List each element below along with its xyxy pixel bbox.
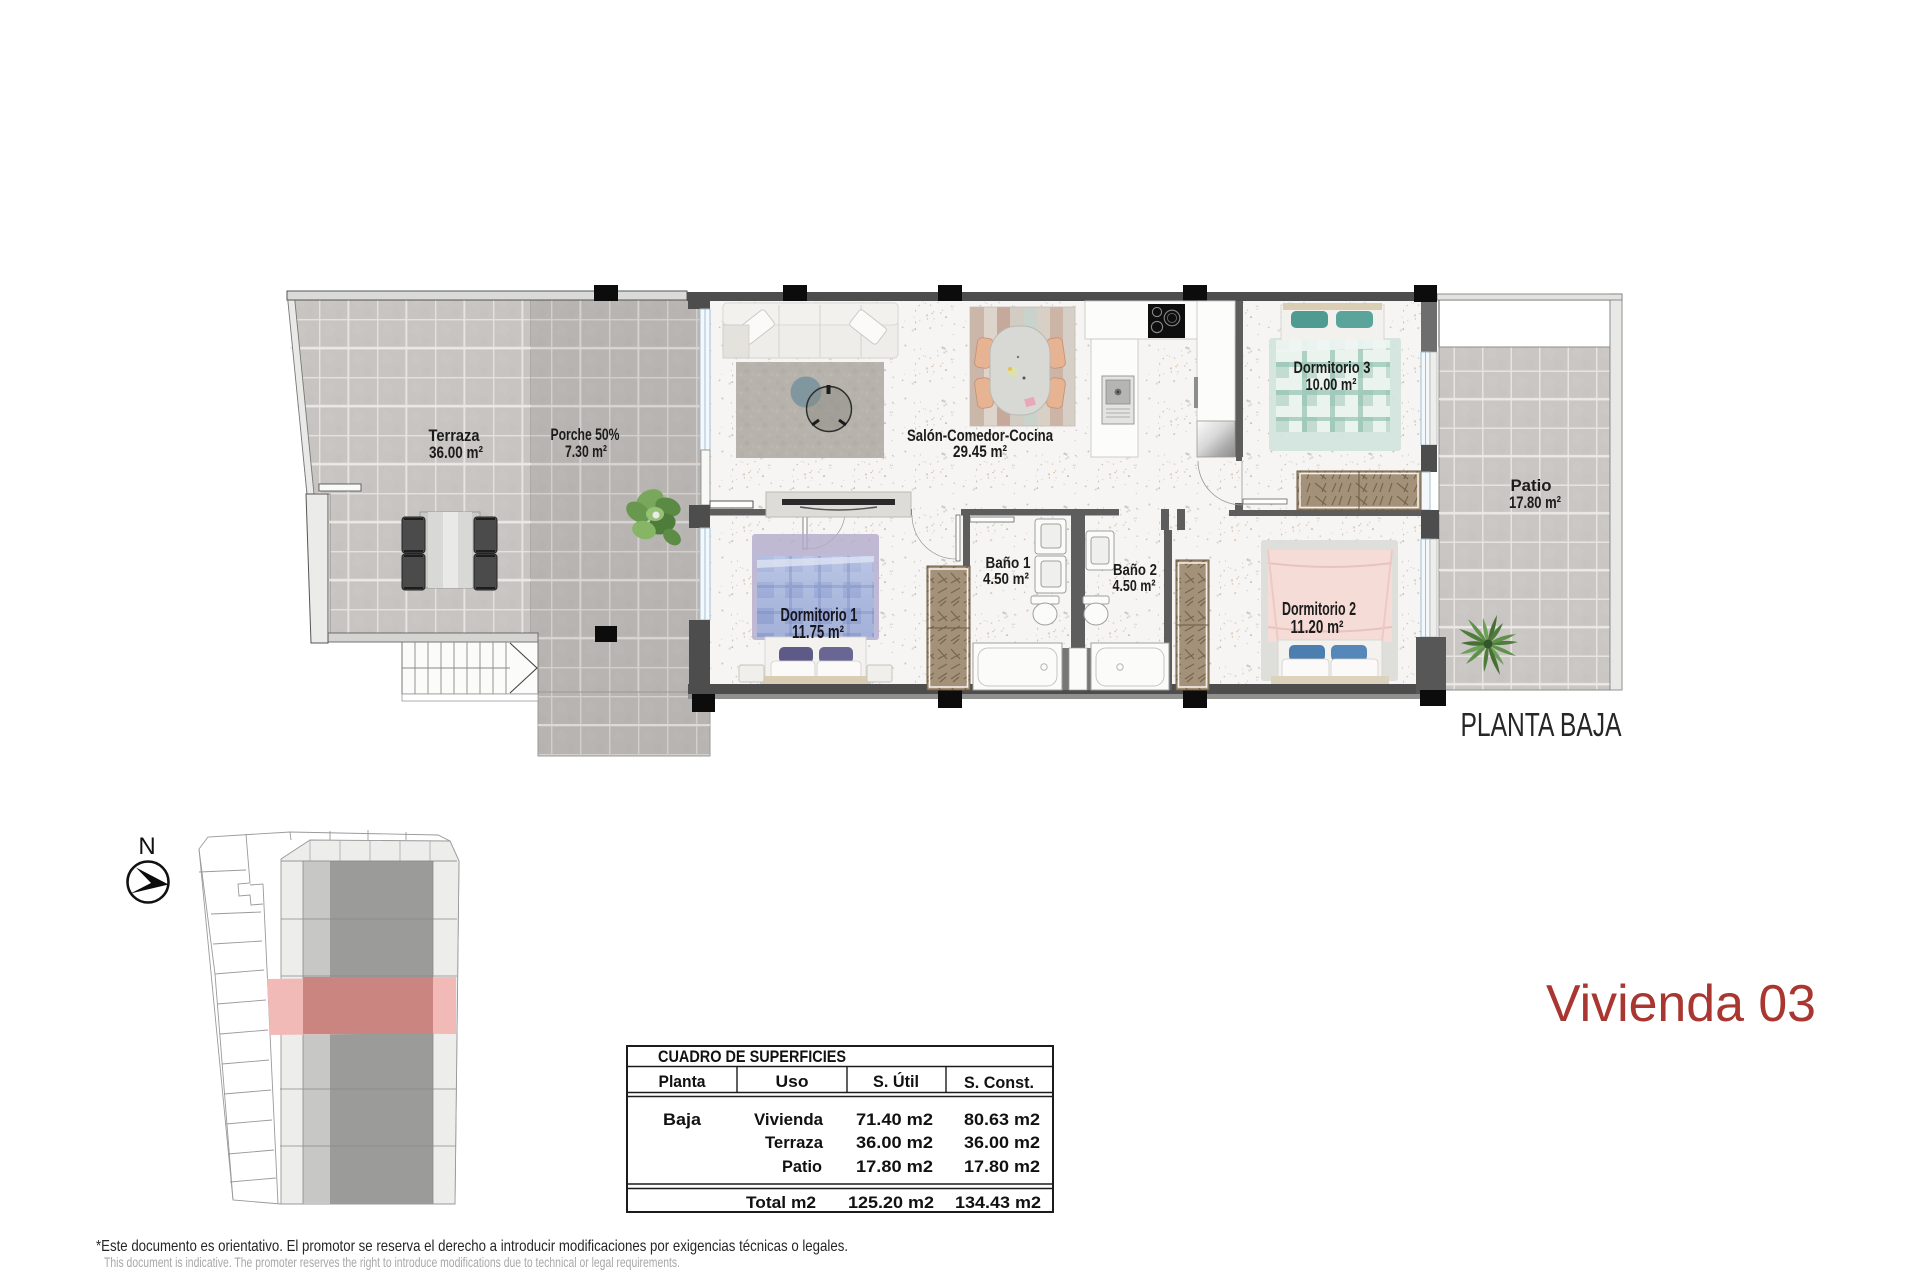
svg-text:4.50 m²: 4.50 m² bbox=[1113, 578, 1156, 595]
svg-text:CUADRO DE SUPERFICIES: CUADRO DE SUPERFICIES bbox=[658, 1047, 846, 1066]
svg-text:11.20 m²: 11.20 m² bbox=[1291, 617, 1344, 637]
svg-text:Patio: Patio bbox=[782, 1157, 822, 1176]
svg-text:Baño 2: Baño 2 bbox=[1113, 562, 1157, 579]
svg-text:S. Útil: S. Útil bbox=[873, 1072, 919, 1091]
svg-text:11.75 m²: 11.75 m² bbox=[792, 622, 844, 642]
svg-text:N: N bbox=[138, 833, 155, 860]
svg-text:10.00 m²: 10.00 m² bbox=[1306, 375, 1357, 394]
svg-text:4.50 m²: 4.50 m² bbox=[983, 571, 1029, 588]
svg-text:80.63 m2: 80.63 m2 bbox=[964, 1110, 1040, 1129]
svg-text:17.80 m2: 17.80 m2 bbox=[964, 1157, 1040, 1176]
svg-text:*Este documento es orientativo: *Este documento es orientativo. El promo… bbox=[96, 1238, 848, 1255]
svg-text:S. Const.: S. Const. bbox=[964, 1073, 1034, 1092]
svg-text:36.00 m2: 36.00 m2 bbox=[856, 1133, 933, 1152]
svg-text:Dormitorio 2: Dormitorio 2 bbox=[1282, 599, 1356, 619]
svg-text:71.40 m2: 71.40 m2 bbox=[856, 1110, 933, 1129]
svg-text:29.45 m²: 29.45 m² bbox=[953, 442, 1007, 461]
svg-text:Uso: Uso bbox=[776, 1072, 809, 1091]
svg-text:Vivienda 03: Vivienda 03 bbox=[1546, 975, 1816, 1033]
svg-text:Terraza: Terraza bbox=[765, 1133, 824, 1152]
svg-text:17.80 m2: 17.80 m2 bbox=[856, 1157, 933, 1176]
svg-text:7.30 m²: 7.30 m² bbox=[565, 442, 607, 461]
svg-text:36.00 m2: 36.00 m2 bbox=[964, 1133, 1040, 1152]
svg-text:134.43 m2: 134.43 m2 bbox=[955, 1193, 1041, 1212]
svg-text:125.20 m2: 125.20 m2 bbox=[848, 1193, 934, 1212]
svg-text:PLANTA BAJA: PLANTA BAJA bbox=[1461, 706, 1622, 743]
svg-text:Vivienda: Vivienda bbox=[754, 1110, 824, 1129]
svg-text:Planta: Planta bbox=[659, 1072, 706, 1091]
svg-text:36.00 m²: 36.00 m² bbox=[429, 443, 483, 462]
svg-text:Baja: Baja bbox=[663, 1110, 702, 1129]
svg-text:Total m2: Total m2 bbox=[746, 1193, 816, 1212]
svg-text:Baño 1: Baño 1 bbox=[986, 555, 1031, 572]
svg-text:This document is indicative. T: This document is indicative. The promote… bbox=[104, 1254, 680, 1270]
svg-text:17.80 m²: 17.80 m² bbox=[1509, 493, 1561, 512]
